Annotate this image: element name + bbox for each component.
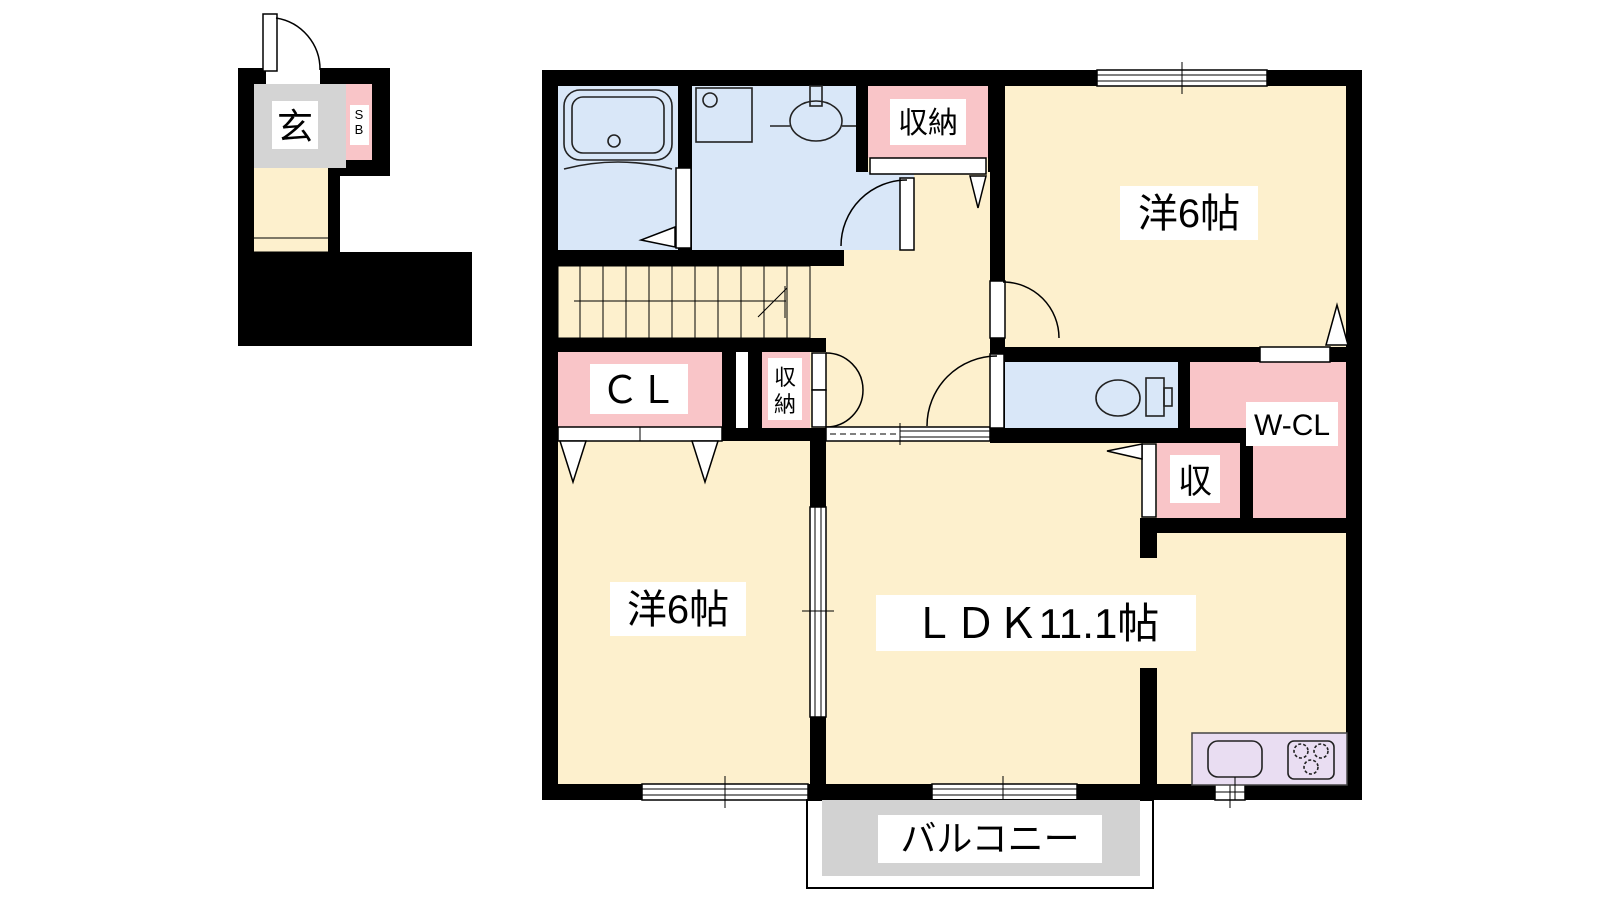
room2-label: 洋6帖 [627,588,729,632]
main-unit: 収納 洋6帖 ＣＬ 収 納 W-CL 収 洋6帖 ＬＤＫ11.1帖 [542,62,1362,812]
entrance-door-swing-arc [276,18,320,70]
wall-hall-room1-upper [990,172,1005,281]
wall-kitchen-upper [1140,518,1157,558]
wall-stairs-bottom [542,338,826,352]
floor-plan: 玄 S B [0,0,1600,900]
genkan-label: 玄 [277,106,313,147]
shoe-box-label-s: S [355,107,364,122]
washroom-floor [692,86,856,250]
room1-door-leaf [990,281,1005,338]
wall-right [1346,70,1362,800]
wall-wcl-bottom [1140,518,1347,533]
toilet-door-leaf [990,354,1004,428]
shoe-box-label-b: B [355,122,364,137]
wall-toilet-wcl [1178,362,1190,428]
wall-kitchen-lower [1140,668,1157,785]
bathroom-door-leaf [676,168,691,248]
ldk-label: ＬＤＫ11.1帖 [913,600,1160,647]
wall-cl-right-b [748,352,762,428]
wcl-label: W-CL [1254,409,1330,442]
entrance-door-leaf [263,14,277,71]
wall-cl-slot [736,352,748,428]
balcony-label: バルコニー [900,818,1079,859]
entrance-block: 玄 S B [238,14,472,346]
balcony: バルコニー [807,800,1153,888]
storage-hall-label-2: 納 [774,392,796,417]
wall-cl-right-a [722,352,736,428]
bathroom-floor [558,86,678,250]
wall-room2-ldk-upper [810,428,826,507]
cl-label: ＣＬ [601,370,677,412]
entrance-hall-floor [254,168,328,252]
storage-hall-label-1: 収 [774,365,796,390]
wall-under-storage-hall [722,428,810,441]
storage-small-label: 収 [1178,463,1212,501]
wall-wash-storage [856,86,868,172]
wall-room2-ldk-lower [810,717,826,784]
wall-wash-bottom [542,250,844,266]
room1-label: 洋6帖 [1138,192,1240,236]
storage-top-label: 収納 [898,107,958,140]
toilet-floor [1005,362,1178,428]
wall-toilet-bottom [990,428,1253,443]
washroom-door-leaf [900,178,914,250]
wall-storage-room1 [988,86,1005,172]
wall-left [542,70,558,800]
hall-ldk-sliding-door [826,423,990,445]
